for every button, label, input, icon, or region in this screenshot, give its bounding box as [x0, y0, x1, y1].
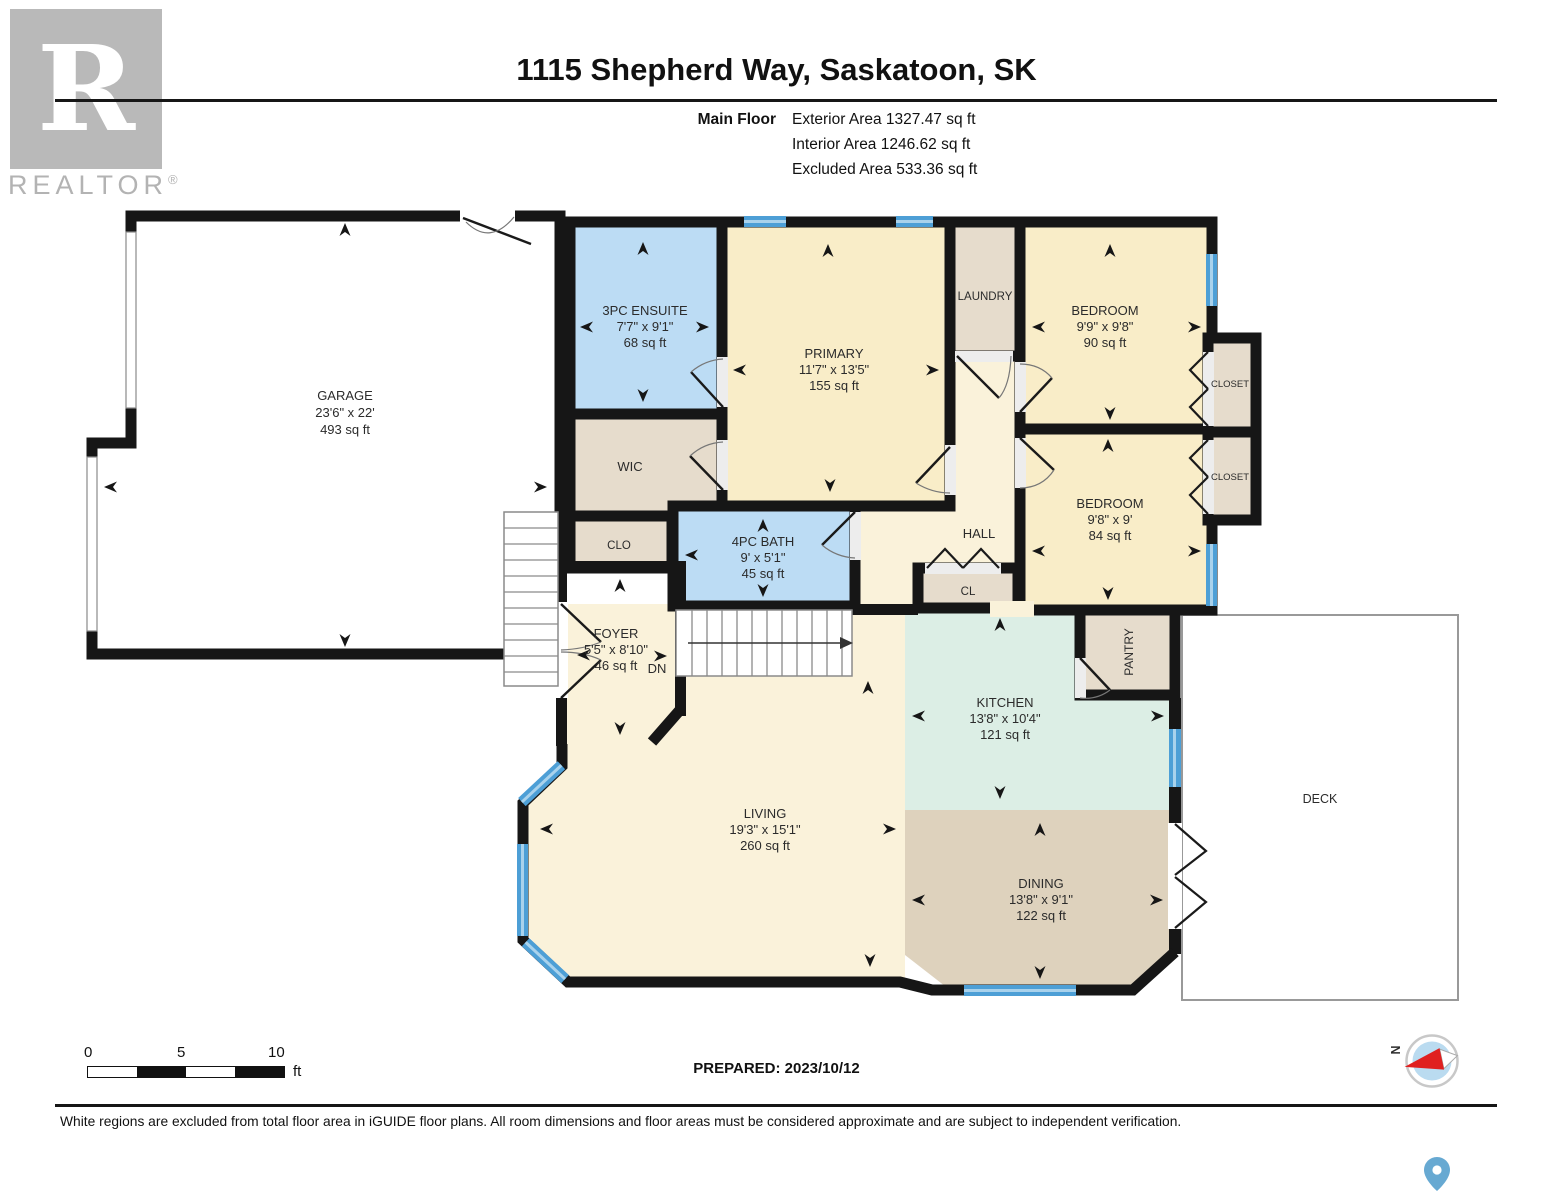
svg-text:13'8" x 9'1": 13'8" x 9'1"	[1009, 892, 1073, 907]
compass-north-label: N	[1389, 1045, 1403, 1054]
floor-plan-drawing: GARAGE 23'6" x 22' 493 sq ft 3PC ENSUITE…	[0, 0, 1553, 1200]
dining-label: DINING	[1018, 876, 1064, 891]
basement-stairs	[676, 610, 853, 676]
primary-label: PRIMARY	[805, 346, 864, 361]
hall-label: HALL	[963, 526, 996, 541]
svg-text:9' x 5'1": 9' x 5'1"	[741, 550, 786, 565]
pantry-label: PANTRY	[1122, 628, 1136, 676]
bath-label: 4PC BATH	[732, 534, 795, 549]
svg-text:84 sq ft: 84 sq ft	[1089, 528, 1132, 543]
garage-stairs	[504, 512, 558, 686]
svg-text:19'3" x 15'1": 19'3" x 15'1"	[729, 822, 801, 837]
deck-label: DECK	[1303, 792, 1338, 806]
kitchen-label: KITCHEN	[976, 695, 1033, 710]
scale-tick-0: 0	[84, 1044, 92, 1061]
svg-text:45 sq ft: 45 sq ft	[742, 566, 785, 581]
svg-text:68 sq ft: 68 sq ft	[624, 335, 667, 350]
prepared-date: PREPARED: 2023/10/12	[0, 1060, 1553, 1077]
floor-plan-page: R 1115 Shepherd Way, Saskatoon, SK REALT…	[0, 0, 1553, 1200]
map-pin-icon	[1424, 1157, 1450, 1191]
stairs-dn-label: DN	[648, 661, 667, 676]
svg-text:122 sq ft: 122 sq ft	[1016, 908, 1066, 923]
living-label: LIVING	[744, 806, 787, 821]
laundry-label: LAUNDRY	[958, 291, 1013, 303]
room-deck	[1182, 615, 1458, 1000]
svg-text:23'6" x 22': 23'6" x 22'	[315, 405, 374, 420]
garage-label: GARAGE	[317, 388, 373, 403]
footer-divider	[55, 1104, 1497, 1107]
svg-text:493 sq ft: 493 sq ft	[320, 422, 370, 437]
bedroom1-label: BEDROOM	[1071, 303, 1138, 318]
scale-tick-10: 10	[268, 1044, 285, 1061]
closet1-label: CLOSET	[1211, 379, 1249, 390]
wic-label: WIC	[617, 459, 642, 474]
svg-text:121 sq ft: 121 sq ft	[980, 727, 1030, 742]
svg-text:9'9" x 9'8": 9'9" x 9'8"	[1077, 319, 1134, 334]
ensuite-label: 3PC ENSUITE	[602, 303, 688, 318]
svg-text:7'7" x 9'1": 7'7" x 9'1"	[617, 319, 674, 334]
cl-label: CL	[961, 586, 976, 598]
svg-text:46 sq ft: 46 sq ft	[595, 658, 638, 673]
svg-text:260 sq ft: 260 sq ft	[740, 838, 790, 853]
room-laundry	[950, 222, 1020, 356]
foyer-label: FOYER	[594, 626, 639, 641]
svg-text:9'8" x 9': 9'8" x 9'	[1088, 512, 1133, 527]
svg-text:13'8" x 10'4": 13'8" x 10'4"	[969, 711, 1041, 726]
closet2-label: CLOSET	[1211, 472, 1249, 483]
disclaimer-text: White regions are excluded from total fl…	[60, 1114, 1360, 1129]
svg-text:90 sq ft: 90 sq ft	[1084, 335, 1127, 350]
svg-text:155 sq ft: 155 sq ft	[809, 378, 859, 393]
bedroom2-label: BEDROOM	[1076, 496, 1143, 511]
svg-text:11'7" x 13'5": 11'7" x 13'5"	[799, 362, 870, 377]
clo-label: CLO	[607, 540, 631, 552]
svg-text:5'5" x 8'10": 5'5" x 8'10"	[584, 642, 648, 657]
scale-tick-5: 5	[177, 1044, 185, 1061]
